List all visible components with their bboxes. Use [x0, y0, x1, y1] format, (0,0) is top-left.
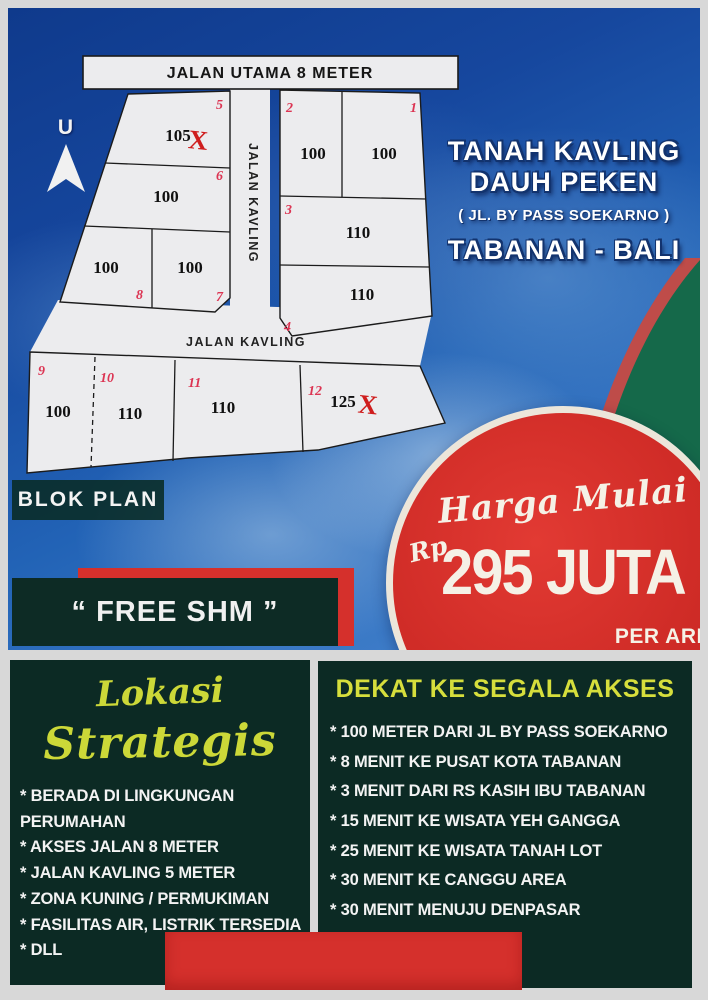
main-road-label: JALAN UTAMA 8 METER [167, 65, 374, 82]
plot-8-area: 100 [93, 258, 119, 277]
plot-6-area: 100 [153, 187, 179, 206]
sky-background: U [8, 8, 700, 650]
plot-5-sold-mark: X [187, 124, 210, 156]
bottom-red-bar [165, 932, 522, 990]
list-item: * 8 MENIT KE PUSAT KOTA TABANAN [330, 748, 686, 778]
plot-9-area: 100 [45, 402, 71, 421]
blok-plan-badge: BLOK PLAN [12, 480, 164, 520]
headline-block: TANAH KAVLING DAUH PEKEN ( JL. BY PASS S… [428, 136, 700, 266]
plot-8-id: 8 [136, 288, 143, 303]
plot-4-id: 4 [283, 320, 291, 335]
list-item: * 30 MENIT MENUJU DENPASAR [330, 896, 686, 926]
plot-12-sold-mark: X [357, 389, 380, 421]
plot-4-area: 110 [350, 285, 375, 304]
list-item: * 30 MENIT KE CANGGU AREA [330, 866, 686, 896]
list-item: * JALAN KAVLING 5 METER [20, 861, 302, 887]
location-heading-line1: Lokasi [9, 667, 310, 718]
headline-line3: ( JL. BY PASS SOEKARNO ) [428, 207, 700, 224]
price-amount: 295 JUTA [410, 535, 700, 609]
list-item: * 25 MENIT KE WISATA TANAH LOT [330, 837, 686, 867]
location-heading-line2: Strategis [10, 714, 311, 770]
plot-12-area: 125 [330, 392, 356, 411]
plot-2-area: 100 [300, 144, 326, 163]
plot-6-id: 6 [216, 169, 223, 184]
access-list: * 100 METER DARI JL BY PASS SOEKARNO * 8… [330, 718, 686, 926]
price-unit: PER ARE [615, 625, 700, 649]
plot-12-id: 12 [308, 384, 322, 399]
block-plan-map: JALAN UTAMA 8 METER JALAN KAVLING JALAN … [18, 48, 468, 518]
plot-2-id: 2 [285, 101, 293, 116]
plot-3-area: 110 [346, 223, 371, 242]
free-shm-banner: “ FREE SHM ” [12, 578, 338, 646]
blok-plan-label: BLOK PLAN [18, 488, 159, 512]
plot-9-id: 9 [38, 364, 45, 379]
list-item: * AKSES JALAN 8 METER [20, 835, 302, 861]
plot-1-id: 1 [410, 101, 417, 116]
list-item: * 3 MENIT DARI RS KASIH IBU TABANAN [330, 777, 686, 807]
plot-10-id: 10 [100, 371, 114, 386]
plot-10-area: 110 [118, 404, 143, 423]
plot-7-id: 7 [216, 290, 224, 305]
plot-11-id: 11 [188, 376, 201, 391]
horizontal-road-label: JALAN KAVLING [186, 335, 306, 349]
plot-5-area: 105 [165, 126, 191, 145]
headline-line4: TABANAN - BALI [428, 235, 700, 266]
access-heading: DEKAT KE SEGALA AKSES [318, 675, 692, 704]
price-lead: Harga Mulai [392, 466, 700, 535]
list-item: * 15 MENIT KE WISATA YEH GANGGA [330, 807, 686, 837]
list-item: * ZONA KUNING / PERMUKIMAN [20, 887, 302, 913]
headline-line1: TANAH KAVLING [428, 136, 700, 167]
list-item: * 100 METER DARI JL BY PASS SOEKARNO [330, 718, 686, 748]
plot-3-id: 3 [284, 203, 292, 218]
plot-11-area: 110 [211, 398, 236, 417]
free-shm-label: “ FREE SHM ” [72, 596, 279, 629]
headline-line2: DAUH PEKEN [428, 167, 700, 198]
list-item: * BERADA DI LINGKUNGAN PERUMAHAN [20, 784, 302, 835]
flyer-root: U [0, 0, 708, 1000]
plot-1-area: 100 [371, 144, 397, 163]
vertical-road-label: JALAN KAVLING [246, 143, 260, 263]
plot-7-area: 100 [177, 258, 203, 277]
plot-5-id: 5 [216, 98, 223, 113]
